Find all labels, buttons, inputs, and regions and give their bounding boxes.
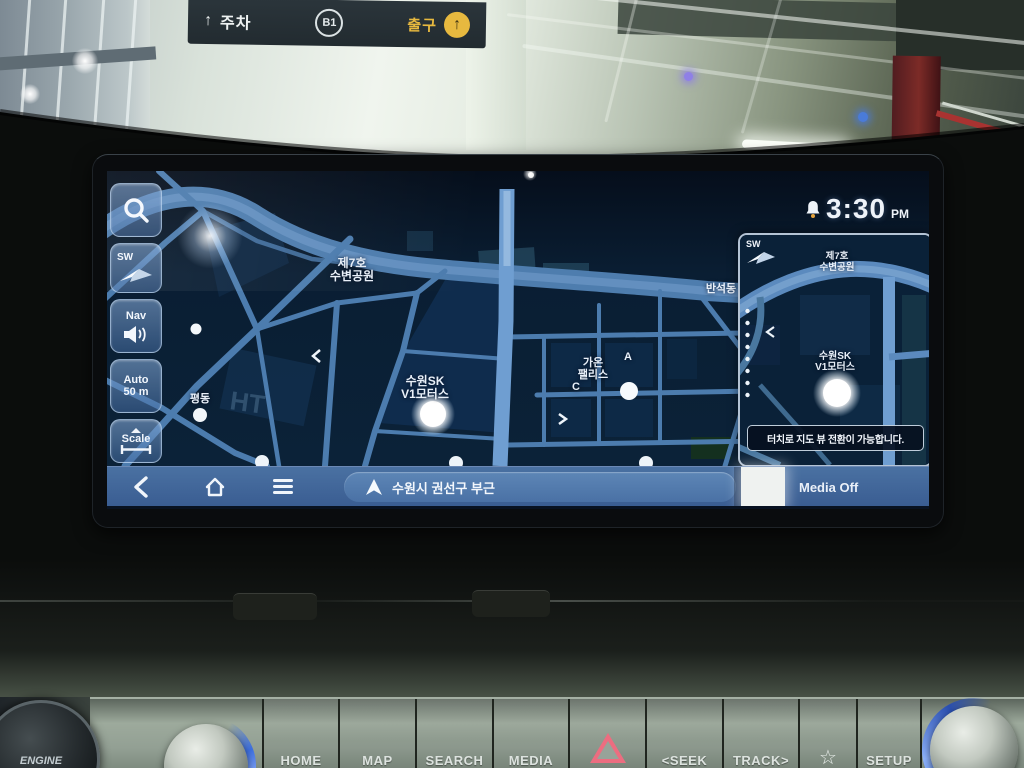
favorite-button[interactable]: ☆ bbox=[798, 699, 856, 768]
star-icon: ☆ bbox=[800, 745, 856, 768]
map-label-pyeongdong: 평동 bbox=[190, 393, 210, 405]
meridiem-text: PM bbox=[891, 207, 909, 221]
current-location-pill[interactable]: 수원시 권선구 부근 bbox=[344, 472, 736, 502]
navigation-display[interactable]: HT bbox=[107, 171, 929, 509]
minimap-label-park: 제7호 수변공원 bbox=[820, 251, 855, 273]
map-label-poi: 수원SK V1모터스 bbox=[401, 375, 449, 401]
back-button[interactable] bbox=[133, 476, 149, 498]
search-icon bbox=[122, 196, 150, 224]
speaker-icon bbox=[124, 325, 148, 343]
media-status-text[interactable]: Media Off bbox=[799, 467, 858, 507]
scale-button[interactable]: Scale bbox=[110, 419, 162, 463]
auto-value: 50 m bbox=[123, 386, 148, 398]
minimap-compass-label: SW bbox=[746, 239, 761, 249]
screen-bottom-bar: 수원시 권선구 부근 Media Off bbox=[107, 466, 929, 506]
minimap-label-poi: 수원SK V1모터스 bbox=[815, 351, 855, 373]
media-hard-button[interactable]: MEDIA bbox=[492, 699, 568, 768]
home-icon bbox=[207, 479, 223, 495]
status-clock: 3:30 PM bbox=[805, 193, 909, 225]
map-label-banseok: 반석동 bbox=[706, 283, 736, 295]
search-button[interactable] bbox=[110, 183, 162, 237]
auto-scale-button[interactable]: Auto 50 m bbox=[110, 359, 162, 413]
hamburger-icon bbox=[273, 479, 293, 482]
time-text: 3:30 bbox=[826, 193, 886, 225]
parking-garage-background: ↑ 주차 B1 출구 ↑ bbox=[0, 0, 1024, 176]
map-label-park: 제7호 수변공원 bbox=[330, 257, 374, 283]
menu-button[interactable] bbox=[273, 479, 293, 494]
current-location-text: 수원시 권선구 부근 bbox=[392, 478, 495, 497]
seek-button[interactable]: <SEEK bbox=[645, 699, 722, 768]
bell-icon bbox=[805, 200, 821, 219]
media-artwork-placeholder[interactable] bbox=[741, 467, 785, 507]
nav-arrow-icon bbox=[366, 479, 382, 496]
home-hard-button[interactable]: HOME bbox=[262, 699, 338, 768]
map-hard-button[interactable]: MAP bbox=[338, 699, 415, 768]
map-label-gaon: 가온 팰리스 bbox=[578, 357, 608, 381]
search-hard-button[interactable]: SEARCH bbox=[415, 699, 492, 768]
compass-direction-label: SW bbox=[117, 252, 133, 264]
nav-volume-button[interactable]: Nav bbox=[110, 299, 162, 353]
nav-volume-label: Nav bbox=[126, 310, 146, 322]
minimap-toast: 터치로 지도 뷰 전환이 가능합니다. bbox=[747, 425, 924, 451]
ruler-icon bbox=[120, 445, 152, 454]
scale-label: Scale bbox=[122, 433, 151, 445]
map-label-block-a: A bbox=[624, 351, 632, 363]
hazard-triangle-icon bbox=[590, 733, 626, 763]
dashboard-hood bbox=[0, 0, 1024, 176]
auto-label: Auto bbox=[123, 374, 148, 386]
hazard-button[interactable] bbox=[568, 699, 645, 768]
track-button[interactable]: TRACK> bbox=[722, 699, 798, 768]
car-dashboard-photo: ↑ 주차 B1 출구 ↑ bbox=[0, 0, 1024, 768]
setup-button[interactable]: SETUP bbox=[856, 699, 922, 768]
map-label-block-c: C bbox=[572, 381, 580, 393]
infotainment-screen-bezel: HT bbox=[92, 154, 944, 528]
map-sidebar: SW Nav Auto bbox=[110, 183, 164, 469]
minimap-compass-needle-icon bbox=[746, 250, 776, 265]
home-button[interactable] bbox=[203, 476, 227, 498]
compass-button[interactable]: SW bbox=[110, 243, 162, 293]
hardware-button-strip: HOME MAP SEARCH MEDIA <SEEK TRACK> ☆ bbox=[0, 697, 1024, 768]
screen-hinge bbox=[472, 590, 550, 617]
svg-text:HT: HT bbox=[228, 385, 267, 420]
compass-needle-icon bbox=[119, 266, 153, 284]
minimap-panel[interactable]: SW 제7호 수변공원 수원SK V1모터스 터치로 지도 뷰 전환이 가능합니… bbox=[738, 233, 929, 467]
screen-hinge bbox=[233, 593, 317, 620]
